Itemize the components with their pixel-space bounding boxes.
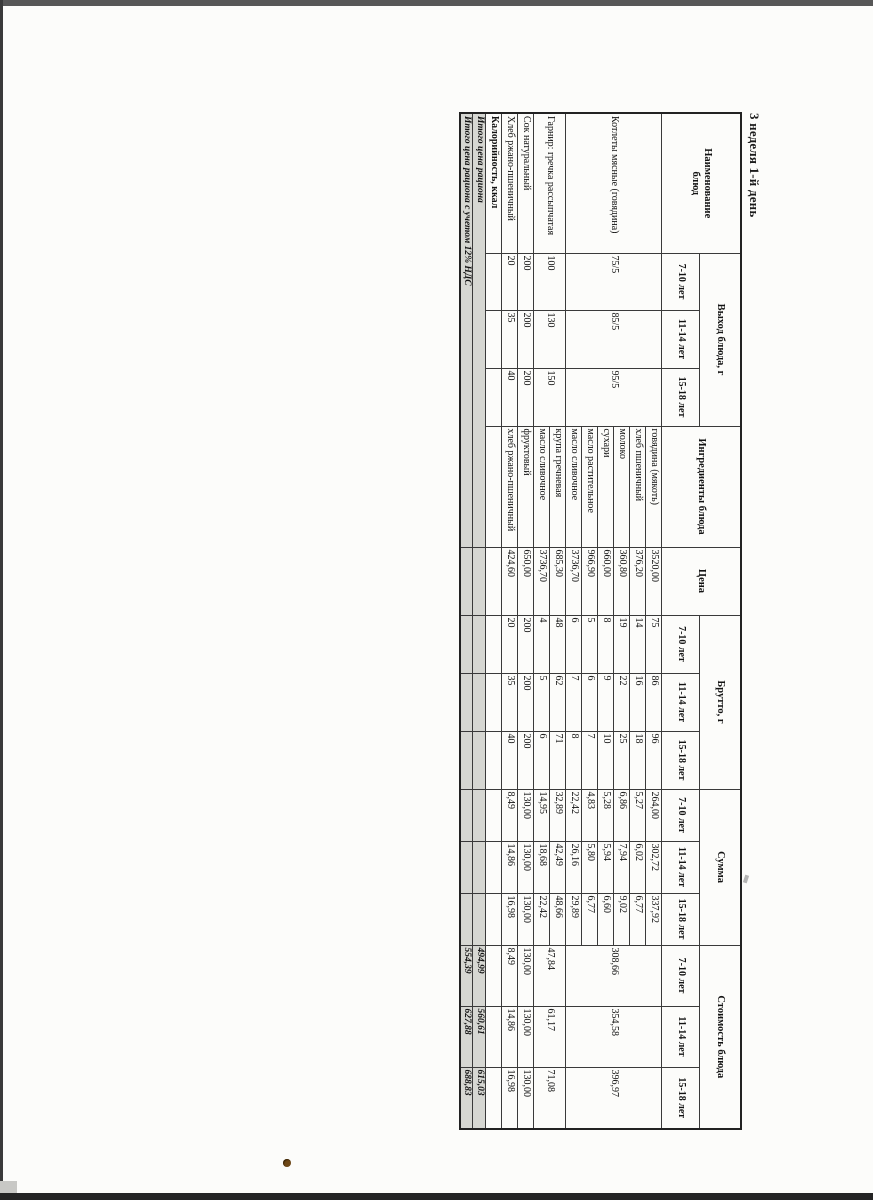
sum-cell: 14,95: [534, 789, 550, 841]
yield-cell: 40: [502, 368, 518, 426]
age-header-cell: 11-14 лет: [662, 673, 700, 731]
ingredient-cell: молоко: [614, 426, 630, 547]
sum-cell: 5,94: [598, 841, 614, 893]
gross-cell: 19: [614, 615, 630, 673]
sum-cell: 26,16: [566, 841, 582, 893]
yield-cell: 100: [534, 253, 566, 310]
table-row: Сок натуральный 200 200 200 фруктовый 65…: [518, 113, 534, 1129]
yield-cell: 130: [534, 310, 566, 368]
yield-cell: 35: [502, 310, 518, 368]
gross-cell: 6: [534, 731, 550, 789]
cost-cell: 47,84: [534, 945, 566, 1006]
price-cell: 966,90: [582, 547, 598, 615]
table-row: Гарнир: гречка рассыпчатая 100 130 150 к…: [550, 113, 566, 1129]
gross-cell: 25: [614, 731, 630, 789]
gross-cell: 35: [502, 673, 518, 731]
sum-cell: 5,27: [630, 789, 646, 841]
ingredient-cell: масло сливочное: [566, 426, 582, 547]
empty-cell: [473, 893, 486, 945]
sum-cell: 130,00: [518, 841, 534, 893]
age-header-cell: 7-10 лет: [662, 789, 700, 841]
yield-cell: 200: [518, 368, 534, 426]
gross-cell: 18: [630, 731, 646, 789]
cost-cell: 130,00: [518, 1067, 534, 1129]
gross-cell: 200: [518, 731, 534, 789]
total-value-cell: 615,03: [473, 1067, 486, 1129]
dish-name-cell: Котлеты мясные (говядина): [566, 113, 662, 253]
age-header-cell: 7-10 лет: [662, 615, 700, 673]
page-title: 3 неделя 1-й день: [746, 113, 762, 217]
sum-cell: 130,00: [518, 893, 534, 945]
sum-cell: 6,77: [582, 893, 598, 945]
price-cell: 660,00: [598, 547, 614, 615]
gross-cell: 9: [598, 673, 614, 731]
menu-table: Наименование блюд Выход блюда, г Ингреди…: [459, 112, 742, 1130]
sum-cell: 8,49: [502, 789, 518, 841]
empty-cell: [473, 841, 486, 893]
cost-cell: 130,00: [518, 1006, 534, 1067]
empty-cell: [460, 615, 473, 673]
gross-cell: 5: [582, 615, 598, 673]
total-row: Итого цена рациона с учетом 12% НДС 554,…: [460, 113, 473, 1129]
yield-cell: 85/5: [566, 310, 662, 368]
empty-cell: [473, 789, 486, 841]
empty-cell: [486, 893, 502, 945]
sum-cell: 6,77: [630, 893, 646, 945]
table-row: Котлеты мясные (говядина) 75/5 85/5 95/5…: [646, 113, 662, 1129]
empty-cell: [486, 789, 502, 841]
empty-cell: [460, 547, 473, 615]
gross-cell: 86: [646, 673, 662, 731]
empty-cell: [486, 426, 502, 547]
gross-cell: 8: [566, 731, 582, 789]
sum-cell: 22,42: [566, 789, 582, 841]
empty-cell: [486, 1006, 502, 1067]
scanner-corner-artifact: [0, 1181, 17, 1193]
cost-cell: 396,97: [566, 1067, 662, 1129]
ingredient-cell: хлеб пшеничный: [630, 426, 646, 547]
scanner-edge-top: [0, 0, 873, 6]
empty-cell: [486, 945, 502, 1006]
sum-cell: 7,94: [614, 841, 630, 893]
gross-cell: 7: [582, 731, 598, 789]
gross-cell: 4: [534, 615, 550, 673]
header-price: Цена: [662, 547, 742, 615]
document-sheet: 3 неделя 1-й день Наименование блюд Выхо…: [0, 0, 873, 1200]
gross-cell: 7: [566, 673, 582, 731]
cost-cell: 8,49: [502, 945, 518, 1006]
empty-cell: [486, 547, 502, 615]
gross-cell: 71: [550, 731, 566, 789]
age-header-cell: 7-10 лет: [662, 253, 700, 310]
total-label-cell: Итого цена рациона с учетом 12% НДС: [460, 113, 473, 547]
yield-cell: 75/5: [566, 253, 662, 310]
age-header-cell: 15-18 лет: [662, 1067, 700, 1129]
header-dish-name: Наименование блюд: [662, 113, 742, 253]
cost-cell: 354,58: [566, 1006, 662, 1067]
empty-cell: [486, 253, 502, 310]
sum-cell: 130,00: [518, 789, 534, 841]
sum-cell: 4,83: [582, 789, 598, 841]
header-gross: Брутто, г: [700, 615, 742, 789]
empty-cell: [486, 310, 502, 368]
gross-cell: 20: [502, 615, 518, 673]
header-row-ages: 7-10 лет 11-14 лет 15-18 лет 7-10 лет 11…: [662, 113, 700, 1129]
gross-cell: 200: [518, 673, 534, 731]
empty-cell: [473, 615, 486, 673]
cost-cell: 308,66: [566, 945, 662, 1006]
header-cost: Стоимость блюда: [700, 945, 742, 1129]
age-header-cell: 11-14 лет: [662, 841, 700, 893]
empty-cell: [473, 673, 486, 731]
ingredient-cell: крупа гречневая: [550, 426, 566, 547]
empty-cell: [486, 841, 502, 893]
sum-cell: 337,92: [646, 893, 662, 945]
ingredient-cell: масло сливочное: [534, 426, 550, 547]
sum-cell: 5,80: [582, 841, 598, 893]
total-value-cell: 494,99: [473, 945, 486, 1006]
ingredient-cell: говядина (мякоть): [646, 426, 662, 547]
yield-cell: 95/5: [566, 368, 662, 426]
age-header-cell: 15-18 лет: [662, 893, 700, 945]
dish-name-cell: Гарнир: гречка рассыпчатая: [534, 113, 566, 253]
ingredient-cell: фруктовый: [518, 426, 534, 547]
empty-cell: [460, 673, 473, 731]
price-cell: 360,80: [614, 547, 630, 615]
sum-cell: 18,68: [534, 841, 550, 893]
total-value-cell: 688,83: [460, 1067, 473, 1129]
dish-name-cell: Хлеб ржано-пшеничный: [502, 113, 518, 253]
total-value-cell: 560,61: [473, 1006, 486, 1067]
paper-speck: [283, 1159, 291, 1167]
yield-cell: 200: [518, 253, 534, 310]
empty-cell: [460, 893, 473, 945]
gross-cell: 5: [534, 673, 550, 731]
ingredient-cell: сухари: [598, 426, 614, 547]
sum-cell: 42,49: [550, 841, 566, 893]
age-header-cell: 15-18 лет: [662, 368, 700, 426]
yield-cell: 200: [518, 310, 534, 368]
gross-cell: 48: [550, 615, 566, 673]
empty-cell: [486, 615, 502, 673]
sum-cell: 22,42: [534, 893, 550, 945]
sum-cell: 264,00: [646, 789, 662, 841]
gross-cell: 75: [646, 615, 662, 673]
sum-cell: 302,72: [646, 841, 662, 893]
gross-cell: 10: [598, 731, 614, 789]
gross-cell: 96: [646, 731, 662, 789]
gross-cell: 62: [550, 673, 566, 731]
ingredient-cell: масло растительное: [582, 426, 598, 547]
gross-cell: 6: [582, 673, 598, 731]
sum-cell: 6,86: [614, 789, 630, 841]
scanner-edge-bottom: [0, 1193, 873, 1200]
price-cell: 3736,70: [566, 547, 582, 615]
gross-cell: 6: [566, 615, 582, 673]
header-row-groups: Наименование блюд Выход блюда, г Ингреди…: [700, 113, 742, 1129]
empty-cell: [473, 547, 486, 615]
age-header-cell: 15-18 лет: [662, 731, 700, 789]
sum-cell: 29,89: [566, 893, 582, 945]
empty-cell: [486, 368, 502, 426]
empty-cell: [486, 731, 502, 789]
age-header-cell: 11-14 лет: [662, 1006, 700, 1067]
price-cell: 3736,70: [534, 547, 550, 615]
yield-cell: 150: [534, 368, 566, 426]
gross-cell: 16: [630, 673, 646, 731]
total-value-cell: 627,88: [460, 1006, 473, 1067]
sum-cell: 48,66: [550, 893, 566, 945]
price-cell: 424,60: [502, 547, 518, 615]
cost-cell: 71,08: [534, 1067, 566, 1129]
sum-cell: 5,28: [598, 789, 614, 841]
total-label-cell: Итого цена рациона: [473, 113, 486, 547]
calories-label-cell: Калорийность, ккал: [486, 113, 502, 253]
price-cell: 650,00: [518, 547, 534, 615]
price-cell: 376,20: [630, 547, 646, 615]
header-yield: Выход блюда, г: [700, 253, 742, 426]
sum-cell: 16,98: [502, 893, 518, 945]
cost-cell: 16,98: [502, 1067, 518, 1129]
price-cell: 3520,00: [646, 547, 662, 615]
cost-cell: 130,00: [518, 945, 534, 1006]
calories-row: Калорийность, ккал: [486, 113, 502, 1129]
gross-cell: 8: [598, 615, 614, 673]
cost-cell: 14,86: [502, 1006, 518, 1067]
scanned-page: 3 неделя 1-й день Наименование блюд Выхо…: [0, 0, 873, 1200]
gross-cell: 22: [614, 673, 630, 731]
empty-cell: [460, 841, 473, 893]
sum-cell: 6,60: [598, 893, 614, 945]
gross-cell: 40: [502, 731, 518, 789]
empty-cell: [473, 731, 486, 789]
sum-cell: 6,02: [630, 841, 646, 893]
header-ingredients: Ингредиенты блюда: [662, 426, 742, 547]
scanner-edge-left: [0, 0, 3, 1200]
cost-cell: 61,17: [534, 1006, 566, 1067]
table-row: Хлеб ржано-пшеничный 20 35 40 хлеб ржано…: [502, 113, 518, 1129]
sum-cell: 14,86: [502, 841, 518, 893]
yield-cell: 20: [502, 253, 518, 310]
sum-cell: 32,89: [550, 789, 566, 841]
empty-cell: [460, 789, 473, 841]
total-value-cell: 554,39: [460, 945, 473, 1006]
header-sum: Сумма: [700, 789, 742, 945]
empty-cell: [486, 673, 502, 731]
dish-name-cell: Сок натуральный: [518, 113, 534, 253]
empty-cell: [460, 731, 473, 789]
ingredient-cell: хлеб ржано-пшеничный: [502, 426, 518, 547]
sum-cell: 9,02: [614, 893, 630, 945]
age-header-cell: 11-14 лет: [662, 310, 700, 368]
empty-cell: [486, 1067, 502, 1129]
age-header-cell: 7-10 лет: [662, 945, 700, 1006]
total-row: Итого цена рациона 494,99 560,61 615,03: [473, 113, 486, 1129]
gross-cell: 200: [518, 615, 534, 673]
price-cell: 685,30: [550, 547, 566, 615]
gross-cell: 14: [630, 615, 646, 673]
